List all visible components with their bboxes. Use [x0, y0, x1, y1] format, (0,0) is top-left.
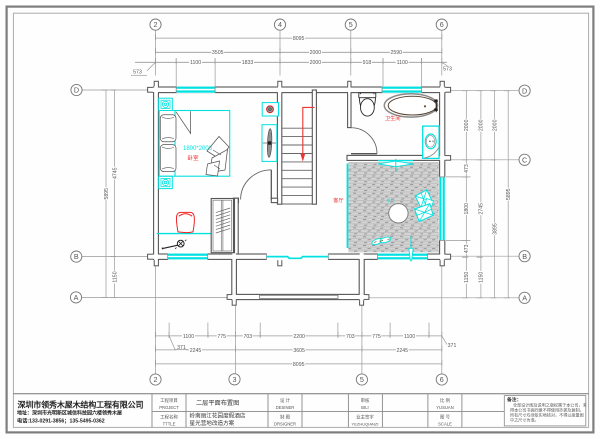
svg-text:PROJECT: PROJECT: [159, 405, 179, 410]
svg-text:2000: 2000: [464, 119, 470, 131]
svg-text:地址：深圳市光明新区城信科技园六楼领秀木屋: 地址：深圳市光明新区城信科技园六楼领秀木屋: [17, 410, 122, 417]
svg-text:岭南丽江花园度假酒店: 岭南丽江花园度假酒店: [190, 412, 246, 420]
svg-text:3895: 3895: [492, 223, 498, 235]
svg-text:B: B: [74, 252, 79, 261]
svg-text:二层平面布置图: 二层平面布置图: [196, 399, 239, 407]
svg-text:473: 473: [464, 164, 470, 173]
svg-text:设 计: 设 计: [280, 397, 291, 404]
svg-text:1150: 1150: [464, 272, 470, 283]
svg-text:工程名称: 工程名称: [160, 414, 178, 421]
svg-text:YEZHUQIANZI: YEZHUQIANZI: [352, 422, 379, 427]
svg-text:2200: 2200: [293, 334, 305, 340]
svg-text:5: 5: [349, 20, 353, 29]
svg-text:2745: 2745: [479, 203, 485, 215]
svg-text:918: 918: [363, 60, 372, 66]
svg-text:5895: 5895: [506, 188, 512, 200]
svg-text:703: 703: [243, 334, 252, 340]
svg-text:573: 573: [133, 70, 142, 76]
svg-text:茶几: 茶几: [387, 197, 395, 203]
svg-text:1100: 1100: [190, 60, 201, 66]
svg-text:BILI: BILI: [361, 405, 368, 410]
svg-text:比 例: 比 例: [440, 397, 451, 404]
svg-text:审核: 审核: [361, 397, 370, 404]
svg-text:星光营地改造方案: 星光营地改造方案: [190, 419, 235, 427]
svg-text:2000: 2000: [310, 60, 322, 66]
svg-text:B: B: [522, 252, 527, 261]
svg-text:2: 2: [154, 20, 158, 29]
svg-text:2245: 2245: [190, 348, 202, 354]
svg-text:YUSUAN: YUSUAN: [436, 405, 453, 410]
svg-text:473: 473: [464, 244, 470, 253]
svg-text:1833: 1833: [242, 60, 254, 66]
svg-text:8095: 8095: [293, 362, 305, 368]
svg-text:1800: 1800: [464, 203, 470, 215]
svg-text:1800*2000: 1800*2000: [183, 146, 213, 152]
svg-text:371: 371: [177, 345, 186, 351]
svg-text:371: 371: [448, 343, 457, 349]
svg-text:A: A: [522, 293, 527, 302]
svg-text:1100: 1100: [397, 60, 408, 66]
svg-text:2000: 2000: [310, 50, 322, 56]
svg-text:2000: 2000: [492, 119, 498, 131]
svg-text:工程项目: 工程项目: [160, 397, 178, 404]
svg-text:6: 6: [440, 20, 444, 29]
svg-text:制 图: 制 图: [280, 414, 291, 421]
svg-text:2245: 2245: [397, 348, 409, 354]
svg-text:客厅: 客厅: [333, 196, 343, 204]
svg-text:6: 6: [440, 375, 444, 384]
svg-text:1100: 1100: [183, 334, 194, 340]
svg-text:775: 775: [217, 334, 226, 340]
svg-text:573: 573: [443, 66, 452, 72]
svg-text:775: 775: [372, 334, 381, 340]
svg-text:8095: 8095: [293, 36, 305, 42]
svg-text:DESINER: DESINER: [276, 405, 295, 410]
svg-text:703: 703: [346, 334, 355, 340]
svg-text:5895: 5895: [104, 188, 110, 200]
svg-text:DRSIGNER: DRSIGNER: [274, 422, 296, 427]
svg-text:1100: 1100: [404, 334, 415, 340]
svg-text:卫生间: 卫生间: [385, 114, 401, 122]
svg-text:卧室: 卧室: [187, 154, 199, 162]
svg-text:3505: 3505: [212, 50, 224, 56]
svg-text:2000: 2000: [479, 119, 485, 131]
svg-text:2: 2: [154, 375, 158, 384]
svg-text:3605: 3605: [293, 348, 305, 354]
svg-text:C: C: [522, 155, 527, 164]
svg-text:4: 4: [278, 20, 282, 29]
svg-text:SCALE: SCALE: [438, 422, 452, 427]
svg-text:中之尺寸为准。: 中之尺寸为准。: [510, 417, 539, 423]
svg-text:3: 3: [233, 375, 237, 384]
svg-text:A: A: [74, 293, 79, 302]
svg-text:5: 5: [360, 375, 364, 384]
svg-text:电话:133-0291-3856；135-5495-0362: 电话:133-0291-3856；135-5495-0362: [17, 416, 105, 424]
svg-text:TTTLE: TTTLE: [163, 422, 176, 427]
svg-text:D: D: [522, 86, 527, 95]
svg-text:1150: 1150: [479, 272, 485, 283]
svg-text:4745: 4745: [112, 167, 118, 179]
svg-text:业主签字: 业主签字: [356, 414, 374, 420]
svg-text:深圳市领秀木屋木结构工程有限公司: 深圳市领秀木屋木结构工程有限公司: [18, 399, 144, 409]
svg-text:D: D: [74, 86, 79, 95]
svg-text:1150: 1150: [112, 271, 118, 282]
svg-text:2590: 2590: [391, 50, 403, 56]
